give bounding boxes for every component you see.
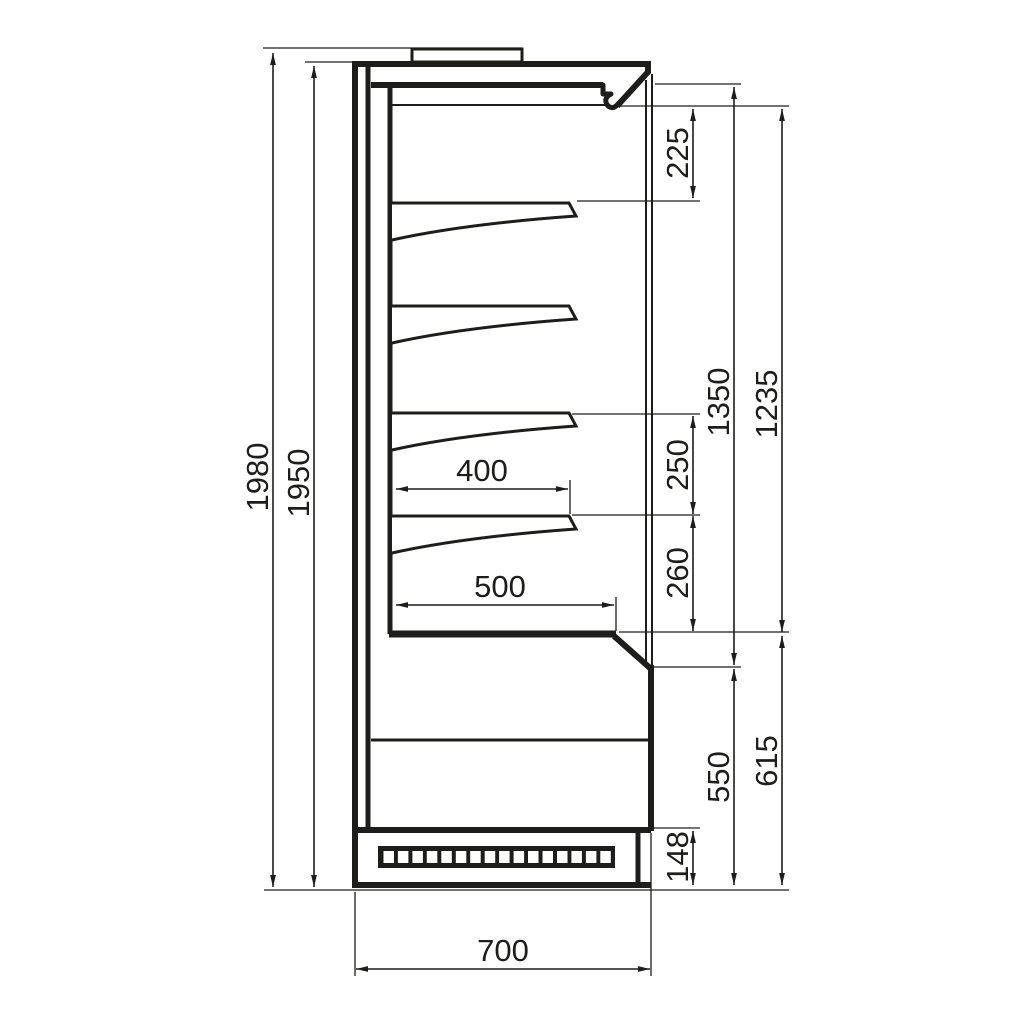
deck-chamfer <box>614 636 650 668</box>
dim-label-deck-depth: 500 <box>474 569 526 604</box>
grille-cell <box>441 851 452 863</box>
grille-cell <box>427 851 438 863</box>
shelf-3 <box>392 413 576 450</box>
grille-cell <box>499 851 510 863</box>
grille-cell <box>557 851 568 863</box>
shelf-2 <box>392 306 576 343</box>
grille-cell <box>456 851 467 863</box>
grille-cell <box>528 851 539 863</box>
multideck-cabinet-side-section: 1980 1950 225 250 260 148 1350 550 1235 … <box>0 0 1024 1024</box>
grille-cell <box>485 851 496 863</box>
grille-cell <box>600 851 611 863</box>
dim-label-plinth-height: 148 <box>660 831 695 883</box>
dim-label-top-clearance: 225 <box>660 127 695 179</box>
dim-label-overall-height: 1980 <box>240 443 275 512</box>
dim-label-shelf-gap-lower: 260 <box>660 547 695 599</box>
dim-label-base-height-inner: 550 <box>701 751 736 803</box>
grille-cell <box>571 851 582 863</box>
top-cap <box>412 49 522 62</box>
extension-lines <box>263 48 789 976</box>
dim-label-inner-height-front: 1350 <box>701 368 736 437</box>
shelf-4 <box>392 516 576 553</box>
dim-label-shelf-gap-upper: 250 <box>660 439 695 491</box>
grille-cell <box>384 851 395 863</box>
grille-cell <box>398 851 409 863</box>
grille-cell <box>470 851 481 863</box>
dim-label-shelf-depth: 400 <box>456 453 508 488</box>
vent-grille <box>378 846 615 868</box>
dimension-labels: 1980 1950 225 250 260 148 1350 550 1235 … <box>240 127 784 968</box>
grille-cell <box>543 851 554 863</box>
dim-label-cabinet-height: 1950 <box>281 449 316 518</box>
grille-cell <box>586 851 597 863</box>
grille-cell <box>412 851 423 863</box>
grille-cell <box>514 851 525 863</box>
dim-label-overall-depth: 700 <box>477 933 529 968</box>
dim-label-base-height-outer: 615 <box>749 735 784 787</box>
shelf-1 <box>392 203 576 240</box>
dim-label-opening-height: 1235 <box>749 370 784 439</box>
technical-drawing-page: 1980 1950 225 250 260 148 1350 550 1235 … <box>0 0 1024 1024</box>
